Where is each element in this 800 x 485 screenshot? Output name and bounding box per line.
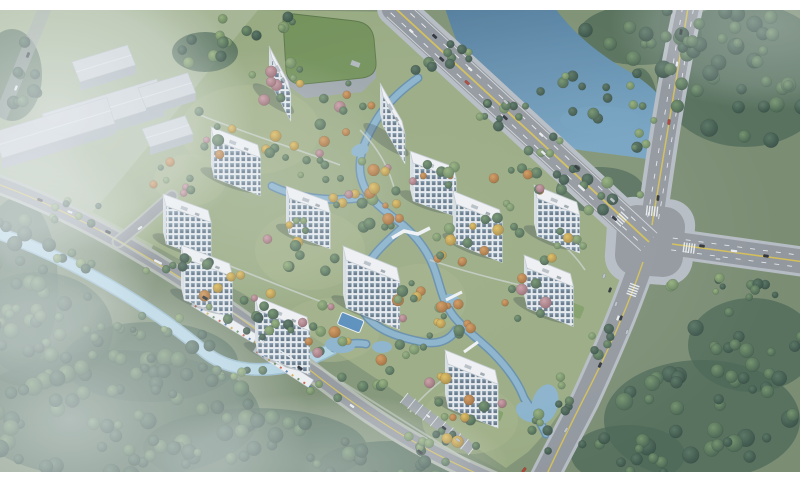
- bottom-border: [0, 472, 800, 485]
- fog-layer: [0, 0, 800, 485]
- atmosphere-tint: [0, 10, 800, 485]
- top-border: [0, 0, 800, 10]
- masterplan-rendering: [0, 0, 800, 485]
- screenshot-frame: [0, 0, 800, 485]
